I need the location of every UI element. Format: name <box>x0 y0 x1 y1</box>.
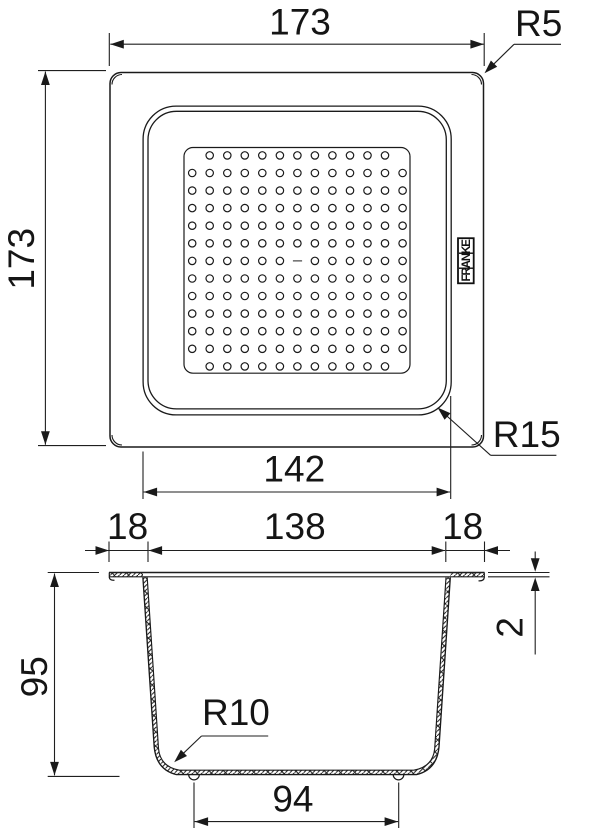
svg-text:FRANKE: FRANKE <box>461 239 473 282</box>
svg-text:142: 142 <box>263 449 325 490</box>
svg-text:138: 138 <box>264 506 326 547</box>
svg-text:18: 18 <box>442 506 483 547</box>
svg-text:R15: R15 <box>493 414 561 455</box>
svg-text:18: 18 <box>107 506 148 547</box>
svg-text:173: 173 <box>269 2 331 43</box>
svg-text:R5: R5 <box>515 3 562 44</box>
svg-text:95: 95 <box>14 656 55 697</box>
svg-text:94: 94 <box>272 778 313 819</box>
svg-text:2: 2 <box>490 617 531 638</box>
svg-text:173: 173 <box>1 228 42 290</box>
svg-text:R10: R10 <box>202 692 270 733</box>
